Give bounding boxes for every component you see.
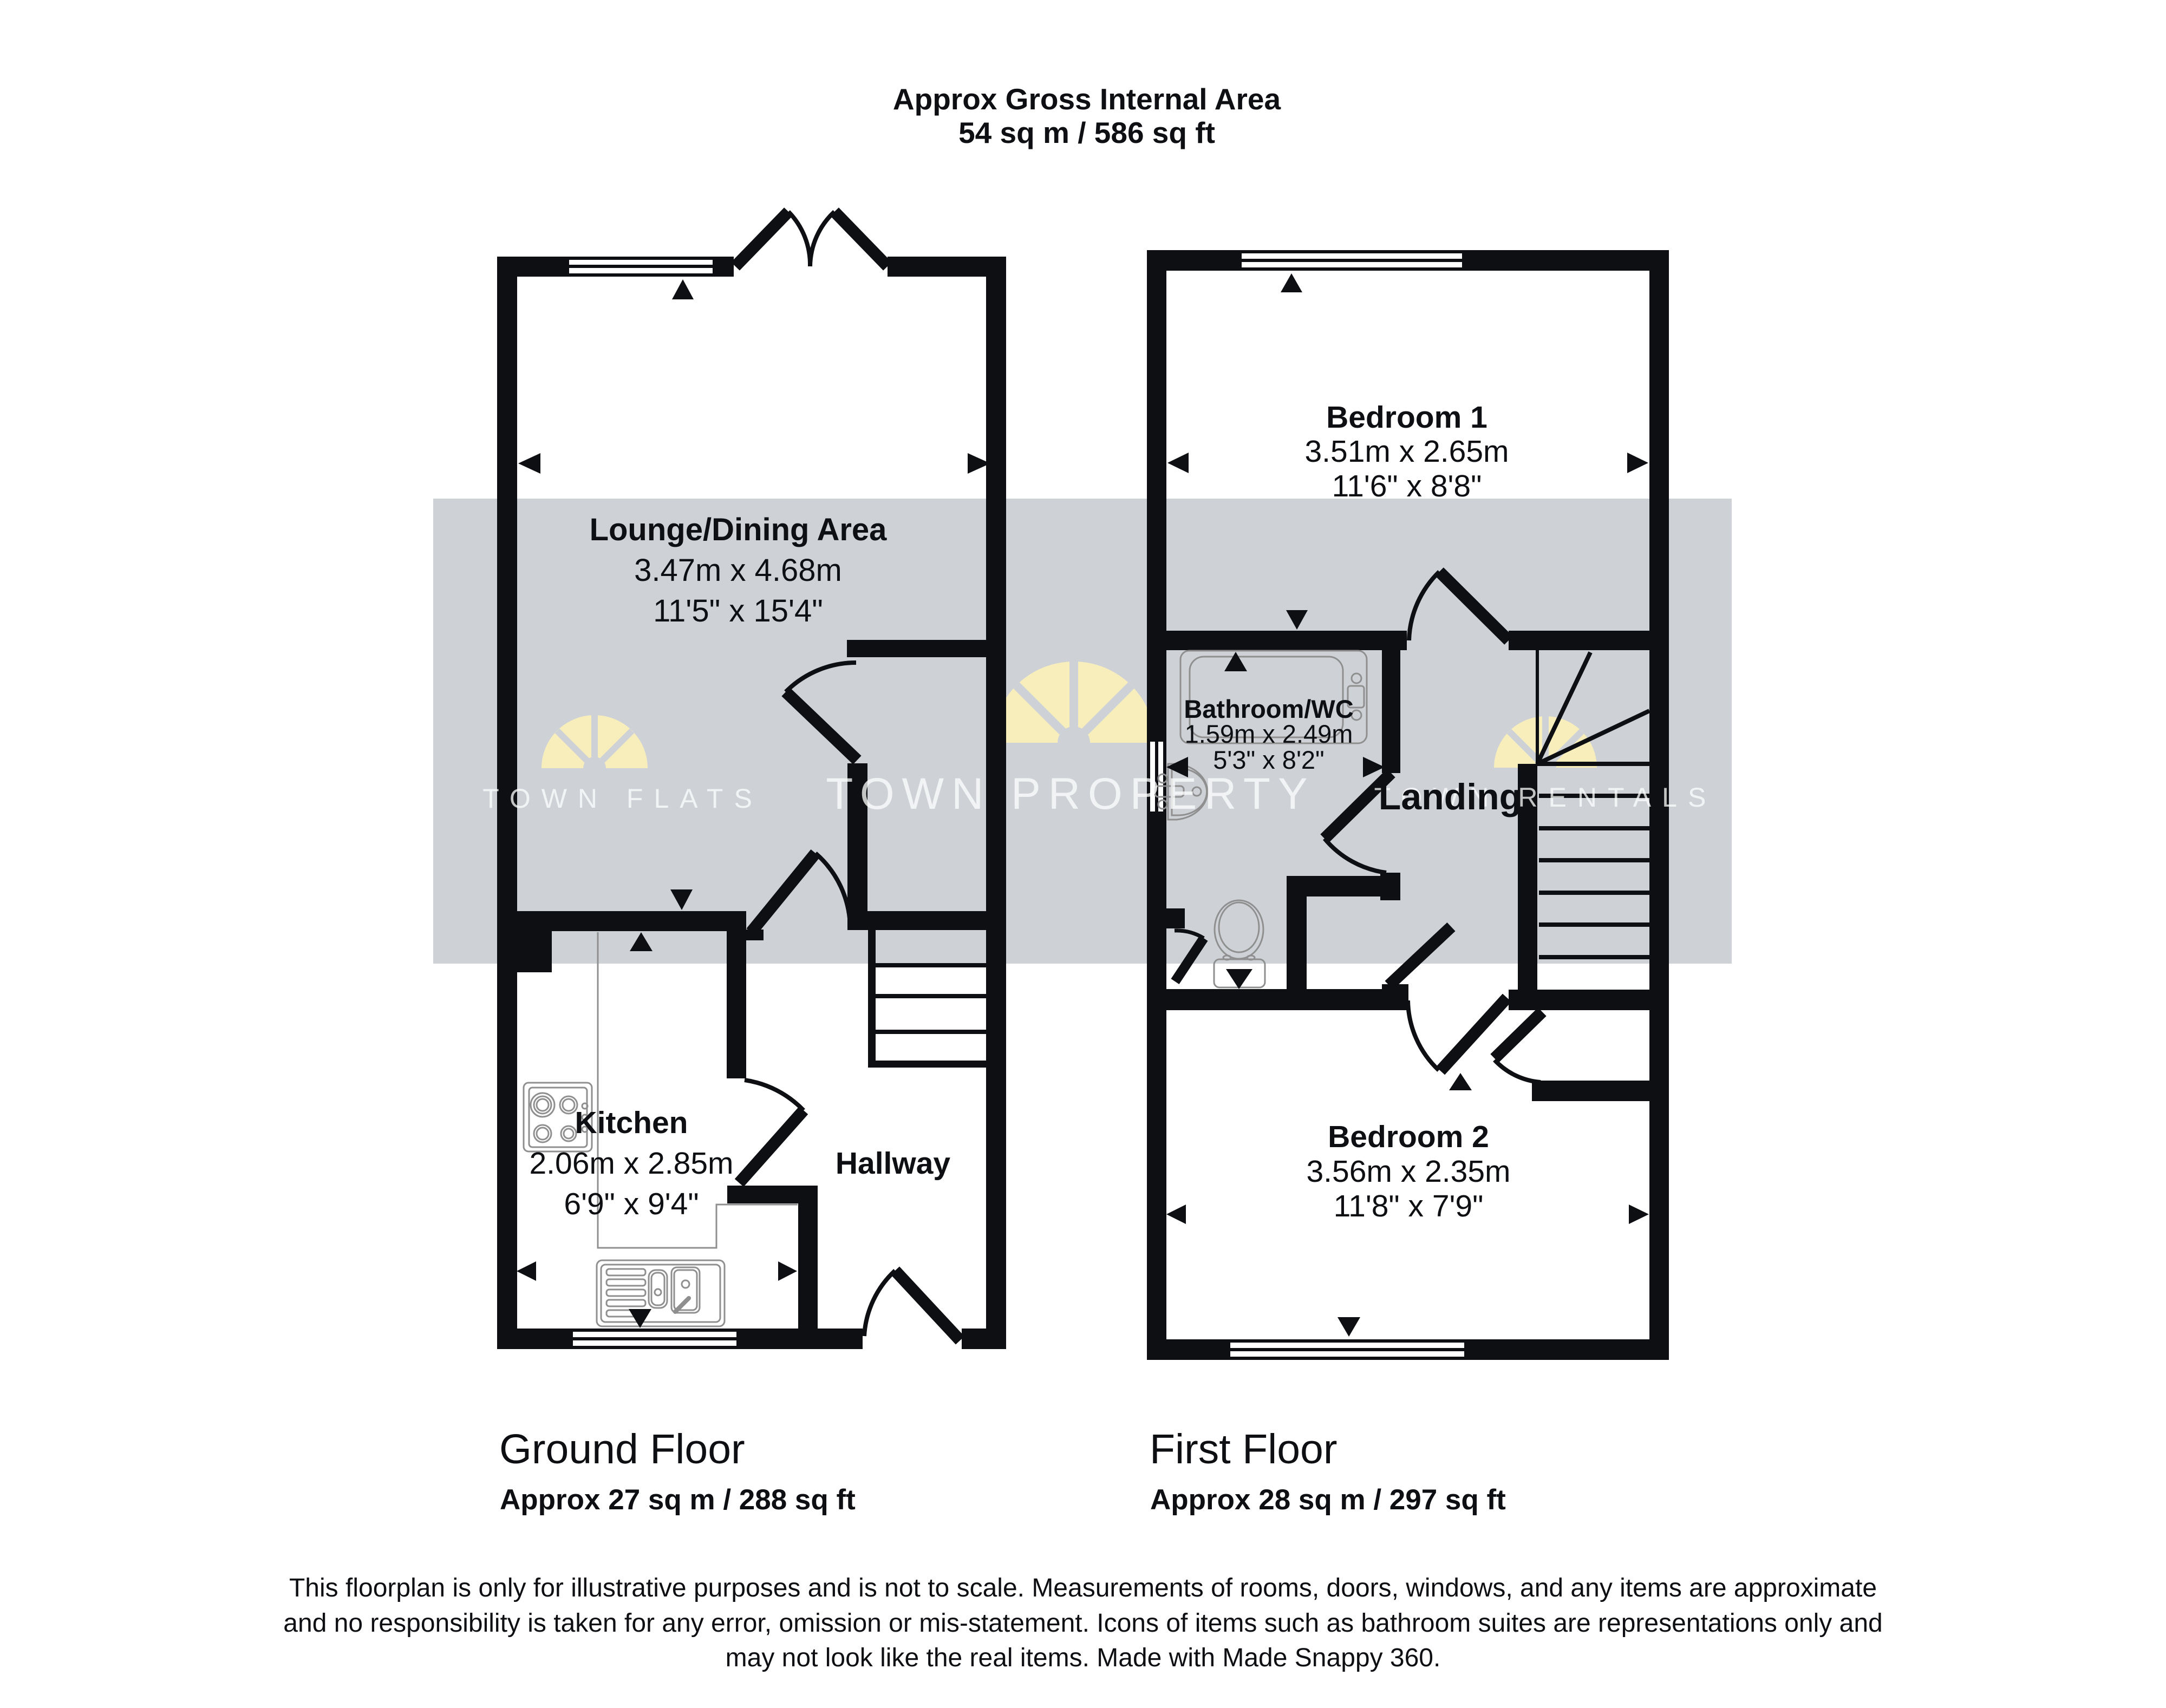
svg-text:11'8" x 7'9": 11'8" x 7'9" — [1334, 1189, 1484, 1223]
svg-text:Bedroom 2: Bedroom 2 — [1328, 1120, 1489, 1154]
svg-text:3.47m x 4.68m: 3.47m x 4.68m — [634, 553, 842, 588]
svg-text:may not look like the real ite: may not look like the real items. Made w… — [726, 1644, 1441, 1672]
svg-text:Lounge/Dining Area: Lounge/Dining Area — [590, 512, 888, 547]
svg-text:Hallway: Hallway — [836, 1146, 951, 1181]
svg-text:11'5" x 15'4": 11'5" x 15'4" — [653, 593, 823, 629]
svg-text:TOWN PROPERTY: TOWN PROPERTY — [826, 769, 1315, 819]
svg-text:6'9" x 9'4": 6'9" x 9'4" — [564, 1187, 699, 1221]
svg-text:and no responsibility is taken: and no responsibility is taken for any e… — [283, 1609, 1882, 1638]
svg-text:5'3" x 8'2": 5'3" x 8'2" — [1213, 745, 1325, 774]
svg-text:3.51m x 2.65m: 3.51m x 2.65m — [1304, 434, 1509, 469]
svg-text:This floorplan is only for ill: This floorplan is only for illustrative … — [289, 1574, 1877, 1602]
svg-text:Approx Gross Internal Area: Approx Gross Internal Area — [893, 82, 1281, 116]
svg-text:Kitchen: Kitchen — [575, 1105, 688, 1140]
svg-text:2.06m x 2.85m: 2.06m x 2.85m — [529, 1146, 733, 1181]
svg-text:Ground Floor: Ground Floor — [499, 1426, 745, 1473]
svg-text:Bedroom 1: Bedroom 1 — [1326, 400, 1488, 435]
svg-text:Approx 28 sq m / 297 sq ft: Approx 28 sq m / 297 sq ft — [1150, 1484, 1506, 1516]
svg-text:54 sq m / 586 sq ft: 54 sq m / 586 sq ft — [958, 116, 1215, 149]
svg-text:Landing: Landing — [1379, 776, 1522, 817]
svg-text:TOWN FLATS: TOWN FLATS — [482, 783, 763, 814]
svg-text:11'6" x 8'8": 11'6" x 8'8" — [1332, 469, 1482, 503]
svg-text:First Floor: First Floor — [1150, 1426, 1338, 1473]
svg-text:3.56m x 2.35m: 3.56m x 2.35m — [1306, 1154, 1510, 1189]
svg-text:1.59m x 2.49m: 1.59m x 2.49m — [1185, 719, 1353, 748]
svg-text:Approx 27 sq m / 288 sq ft: Approx 27 sq m / 288 sq ft — [500, 1484, 856, 1516]
